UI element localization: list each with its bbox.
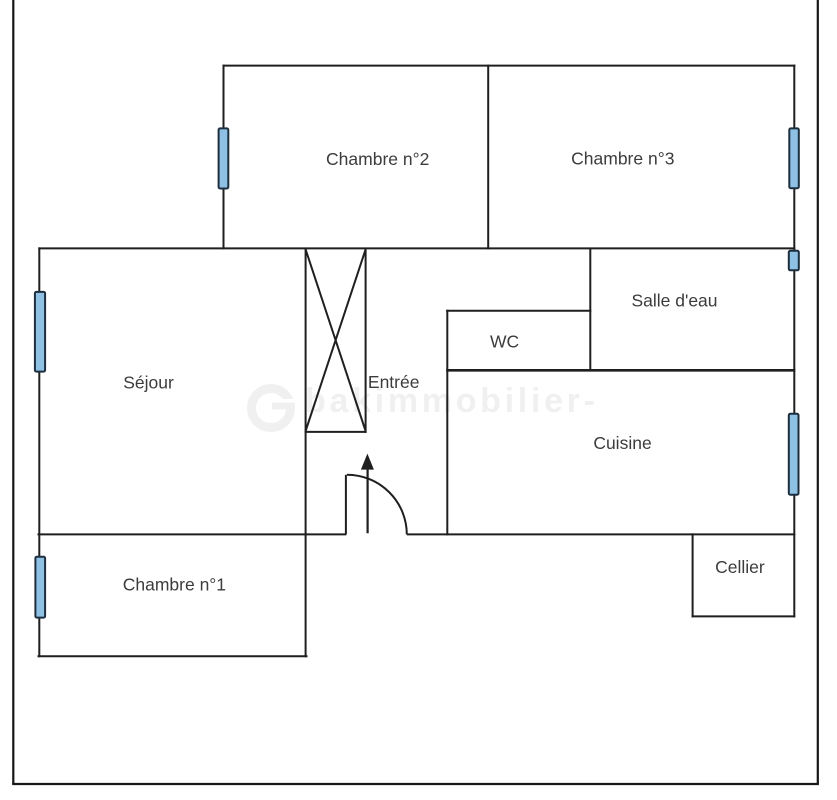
svg-text:WC: WC: [490, 331, 519, 351]
svg-text:Chambre n°1: Chambre n°1: [123, 575, 226, 595]
svg-text:Cellier: Cellier: [715, 557, 765, 577]
svg-text:Cuisine: Cuisine: [593, 433, 651, 453]
svg-text:Chambre n°2: Chambre n°2: [326, 149, 429, 169]
svg-text:Entrée: Entrée: [368, 372, 420, 392]
svg-text:Séjour: Séjour: [123, 372, 174, 392]
svg-text:Chambre n°3: Chambre n°3: [571, 148, 674, 168]
svg-text:Salle d'eau: Salle d'eau: [631, 291, 717, 311]
svg-text:bakimmobilier-: bakimmobilier-: [305, 382, 599, 420]
